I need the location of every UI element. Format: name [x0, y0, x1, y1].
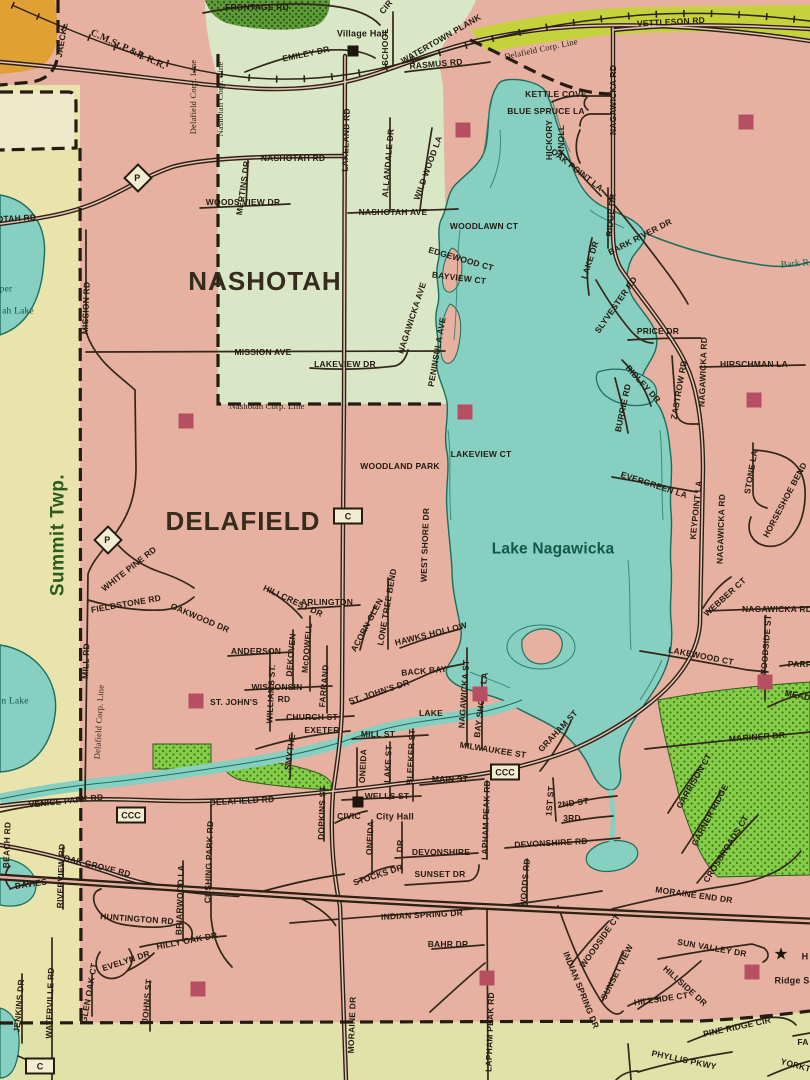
- landmark-red-square: [458, 405, 473, 420]
- map-label: GARNER RIDGE: [690, 783, 730, 848]
- highway-shield: CCC: [116, 807, 146, 824]
- map-label: OAK GROVE RD: [62, 854, 131, 879]
- map-label: RASMUS RD: [409, 57, 463, 70]
- landmark-red-square: [179, 414, 194, 429]
- map-label: HILLSIDE CT: [633, 991, 688, 1007]
- map-label: MEADOW: [784, 689, 810, 706]
- map-label: MILWAUKEE ST: [459, 741, 527, 760]
- highway-shield-label: P: [105, 535, 111, 545]
- map-label: LAKEWOOD CT: [668, 645, 735, 666]
- highway-shield: CCC: [490, 764, 520, 781]
- map-label: 2ND ST: [557, 797, 589, 810]
- map-label: LAKEVIEW DR: [314, 360, 376, 369]
- map-label: NAGAWICKA AVE: [396, 281, 427, 355]
- map-label: EXETER: [304, 726, 339, 735]
- map-label: MILL RD: [81, 643, 91, 679]
- map-label: CHURCH ST: [286, 713, 338, 722]
- map-label: CUSHING PARK RD: [203, 821, 214, 904]
- map-label: NAGAWICKA RD: [609, 65, 618, 135]
- map-label: MARINER DR: [729, 731, 786, 743]
- landmark-red-square: [739, 115, 754, 130]
- map-label: NAGAWICKA ST: [457, 659, 470, 728]
- map-label: NASHOTAH RD: [261, 154, 325, 163]
- map-label: CIVIC: [337, 812, 361, 821]
- highway-shield-label: C: [37, 1061, 44, 1071]
- map-label: ST. JOHN'S DR: [348, 678, 411, 706]
- map-label: BAYVIEW CT: [431, 270, 486, 285]
- map-label: ONEIDA: [365, 821, 375, 856]
- map-label: DAVIES: [14, 878, 47, 891]
- map-label: MISSION AVE: [235, 348, 292, 357]
- map-label: Summit Twp.: [49, 474, 68, 596]
- map-label: SUNSET DR: [415, 870, 466, 879]
- map-label: EVELYN DR: [101, 949, 151, 972]
- map-label: LAKEVIEW CT: [451, 450, 512, 459]
- map-label: Lake Nagawicka: [492, 541, 615, 557]
- map-label: STOCKS DR: [352, 863, 404, 887]
- map-label: ZASTROW RD: [670, 360, 689, 420]
- map-label: OAKWOOD DR: [169, 602, 230, 634]
- map-label: MISSION RD: [81, 282, 91, 335]
- map-label: SLYVESTER RD: [593, 275, 638, 335]
- map-label: HIRSCHMAN LA: [720, 360, 788, 369]
- map-label: 1ST ST: [544, 786, 555, 817]
- map-label: HORSESHOE BEND: [762, 461, 809, 539]
- map-label: BLEEKER ST: [405, 729, 416, 785]
- map-label: City Hall: [376, 813, 414, 822]
- map-label: DEKOVEN: [285, 633, 297, 677]
- map-label: EMILEY DR: [282, 45, 331, 63]
- map-label: BACK BAY: [401, 665, 447, 677]
- map-label: FRONTAGE RD: [225, 3, 289, 12]
- map-label: BURRIE RD: [614, 383, 633, 433]
- map-label: WELLS ST: [365, 792, 410, 801]
- map-label: DELAFIELD RD: [209, 795, 274, 807]
- highway-shield-label: CCC: [121, 810, 141, 820]
- highway-shield-label: CCC: [495, 767, 515, 777]
- map-label: WOODLAND PARK: [360, 462, 439, 471]
- map-label: WOODSIDE ST: [759, 614, 773, 677]
- map-label: SMYTHE: [283, 733, 297, 770]
- map-label: NAGAWICKA RD: [742, 605, 810, 614]
- map-label: WOODLAWN CT: [450, 222, 518, 231]
- highway-shield-label: C: [345, 511, 352, 521]
- map-label: MAIN ST: [432, 775, 468, 784]
- map-label: WOODSIDE CT: [578, 913, 621, 970]
- map-label: Bark R: [780, 259, 809, 271]
- map-label: BAHR DR: [428, 940, 469, 949]
- map-label: C.M.St.P.&P. R.R.: [89, 28, 168, 72]
- map-label: SUNSET VIEW: [599, 943, 634, 1001]
- map-label: ARLINGTON: [301, 598, 353, 607]
- map-label: Nashotah Corp. Line: [216, 62, 225, 137]
- map-label: PENINSULA AVE: [427, 317, 448, 388]
- map-label: KEYPOINT LA: [689, 480, 704, 540]
- map-label: Ridge S: [775, 977, 810, 986]
- map-label: PRICE DR: [637, 327, 679, 336]
- map-label: BEACH RD: [2, 822, 12, 869]
- map-label: ALLANDALE DR: [381, 128, 395, 197]
- map-label: VENICE PARK RD: [28, 793, 103, 809]
- map-label: YORKTOWN: [780, 1057, 810, 1079]
- map-label: LAKE DR: [580, 240, 600, 280]
- map-label: H: [802, 953, 809, 962]
- map-label: LAPHAM PEAK RD: [484, 992, 495, 1072]
- map-label: LAKELAND RD: [341, 108, 352, 172]
- map-label: LAPHAM PEAK RD: [480, 780, 491, 860]
- landmark-red-square: [758, 675, 773, 690]
- map-label: CIR: [378, 0, 394, 16]
- map-label: SUN VALLEY DR: [677, 938, 748, 959]
- map-label: PARR: [788, 660, 810, 669]
- map-label: NAGAWICKA RD: [698, 337, 709, 407]
- map-label: McDOWELL: [301, 623, 314, 674]
- map-label: WISCONSIN: [252, 683, 303, 692]
- landmark-red-square: [745, 965, 760, 980]
- highway-shield: C: [333, 508, 363, 525]
- landmark-star-icon: ★: [773, 946, 788, 963]
- map-label: NASHOTAH: [188, 268, 341, 294]
- map-label: HUNTINGTON RD: [100, 912, 174, 926]
- highway-shield: C: [25, 1058, 55, 1075]
- map-label: BRIARWOOD LA: [175, 865, 186, 936]
- map-label: WATERVILLE RD: [45, 967, 56, 1038]
- map-label: FARRAND: [318, 664, 330, 708]
- map-label: INDIAN SPRING DR: [381, 909, 463, 922]
- map-label: per: [0, 285, 12, 295]
- map-label: WOODS RD: [519, 858, 532, 908]
- map-label: BLUE SPRUCE LA: [507, 107, 584, 116]
- map-label: HILLY OAK DR: [156, 931, 218, 951]
- map-label: BARK RIVER DR: [607, 217, 673, 256]
- map-label: WILLIAMS ST.: [265, 664, 277, 723]
- landmark-red-square: [456, 123, 471, 138]
- map-label: RD: [278, 695, 291, 704]
- map-label: EVERGREEN LA: [620, 470, 689, 500]
- map-label: ah Lake: [2, 307, 34, 317]
- landmark-red-square: [747, 393, 762, 408]
- map-label: DELAFIELD: [166, 508, 321, 534]
- map-label: n Lake: [1, 697, 28, 707]
- map-label: SCHOOL: [381, 28, 390, 66]
- landmark-red-square: [189, 694, 204, 709]
- map-label: STONE LA: [743, 449, 759, 494]
- map-label: FA: [797, 1038, 808, 1047]
- map-label: DOPKINS ST: [317, 786, 327, 840]
- landmark-red-square: [473, 687, 488, 702]
- map-label: OAK POINT LA: [549, 147, 604, 193]
- map-label: GLEN OAK CT: [80, 962, 99, 1023]
- map-label: Delafield Corp. Line: [504, 37, 579, 61]
- map-label: WILD WOOD LA: [412, 135, 443, 201]
- map-label: MILL ST: [361, 730, 395, 739]
- map-label: LAKE: [419, 709, 443, 718]
- map-label: WEST SHORE DR: [419, 508, 430, 583]
- map-label: ST. JOHN'S: [210, 698, 258, 707]
- map-label: FIELDSTONE RD: [90, 594, 161, 615]
- map-label: MORAINE END DR: [655, 885, 733, 904]
- map-label: RIDGE DR: [605, 193, 617, 237]
- map-label: ONEIDA: [358, 749, 368, 784]
- map-label: MERTINS DR: [235, 160, 251, 216]
- map-label: Delafield Corp. Line: [93, 685, 105, 760]
- map-label: KETTLE COVE: [525, 90, 587, 99]
- highway-shield-label: P: [135, 173, 141, 183]
- map-label: Nashotah Corp. Line: [230, 402, 305, 411]
- map-label: NAGAWICKA RD: [716, 494, 727, 564]
- map-label: NASHOTAH RD: [0, 213, 36, 225]
- map-label: NASHOTAH AVE: [359, 208, 428, 217]
- map-label: JOHNS ST: [141, 979, 153, 1024]
- map-label: PINE RIDGE CIR: [702, 1016, 771, 1039]
- map-label: HAWKS HOLLOW: [394, 621, 468, 647]
- map-label: VETTLESON RD: [637, 16, 705, 28]
- map-label: ANDERSON: [231, 647, 281, 656]
- map-label: BAY SHORE LA: [473, 672, 489, 738]
- landmark-building-square: [353, 797, 364, 808]
- map-label: JENKINS DR: [12, 979, 25, 1033]
- landmark-building-square: [348, 46, 359, 57]
- map-label: PHYLLIS PKWY: [651, 1049, 717, 1071]
- map-label: DEVONSHIRE: [412, 848, 470, 857]
- map-label: EDGEWOOD CT: [427, 246, 494, 273]
- map-label: GRAHAM ST: [537, 709, 580, 754]
- map-label: Delafield Corp. Line: [189, 60, 198, 135]
- map-label: JAECKL: [55, 22, 69, 58]
- map-label: WEBBER CT: [702, 576, 747, 618]
- map-label: MORAINE DR: [347, 996, 357, 1053]
- map-canvas: FRONTAGE RDCIRVillage HallSCHOOLJAECKLC.…: [0, 0, 810, 1080]
- landmark-red-square: [191, 982, 206, 997]
- map-label: GARRISON CT: [675, 752, 713, 810]
- map-label: DEVONSHIRE RD: [514, 837, 588, 849]
- landmark-red-square: [480, 971, 495, 986]
- map-label: WOODS VIEW DR: [206, 198, 280, 207]
- map-label: DR: [395, 839, 404, 852]
- map-label: LAKE ST: [383, 745, 393, 783]
- map-label: 3RD: [563, 814, 581, 823]
